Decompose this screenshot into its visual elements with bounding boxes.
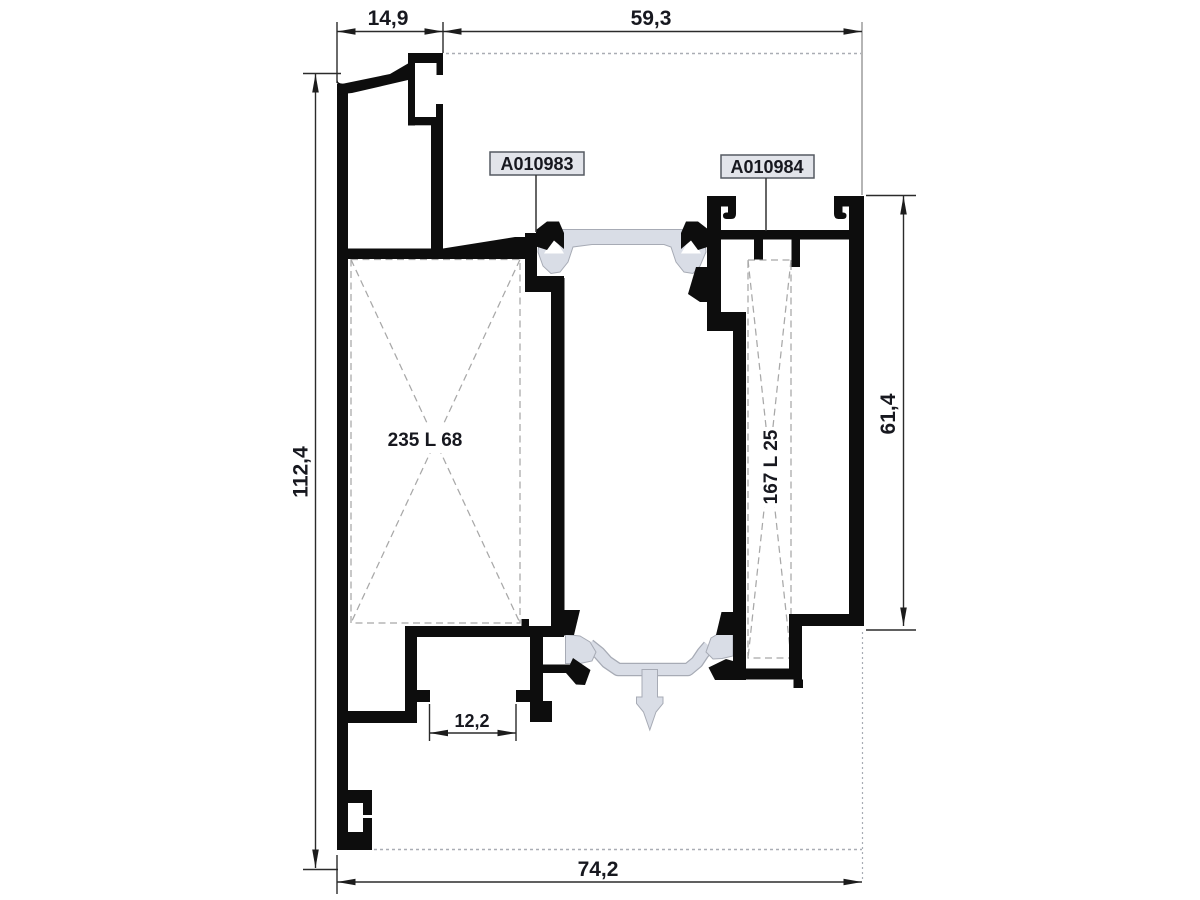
svg-text:14,9: 14,9: [368, 7, 409, 30]
svg-text:12,2: 12,2: [454, 711, 489, 731]
svg-text:235 L 68: 235 L 68: [388, 430, 463, 451]
svg-text:112,4: 112,4: [290, 446, 313, 498]
svg-text:A010984: A010984: [730, 157, 803, 177]
svg-text:74,2: 74,2: [578, 858, 619, 881]
svg-text:A010983: A010983: [500, 154, 573, 174]
svg-text:167 L 25: 167 L 25: [761, 429, 782, 504]
svg-text:61,4: 61,4: [877, 393, 900, 434]
svg-text:59,3: 59,3: [631, 7, 672, 30]
